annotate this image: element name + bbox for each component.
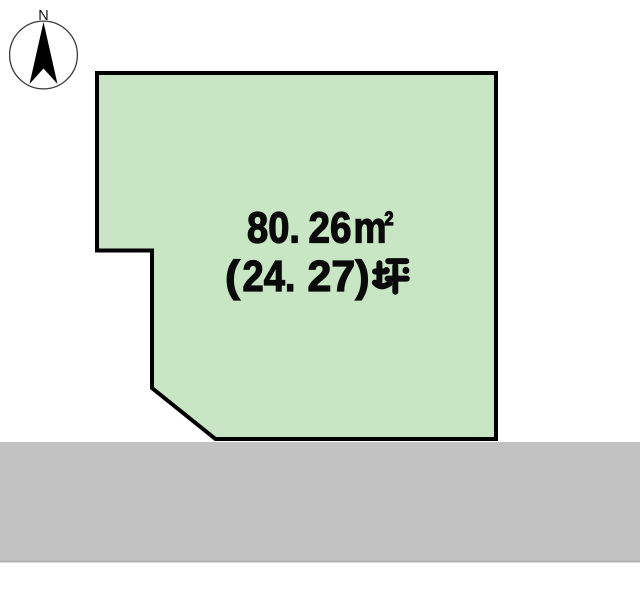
svg-text:26: 26 bbox=[309, 204, 352, 253]
svg-text:80.: 80. bbox=[247, 204, 300, 253]
svg-text:24.: 24. bbox=[243, 252, 296, 301]
svg-text:(: ( bbox=[225, 252, 240, 301]
svg-text:m: m bbox=[354, 204, 387, 253]
svg-text:2: 2 bbox=[385, 209, 394, 230]
svg-text:N: N bbox=[38, 8, 48, 24]
svg-text:27): 27) bbox=[308, 252, 370, 301]
